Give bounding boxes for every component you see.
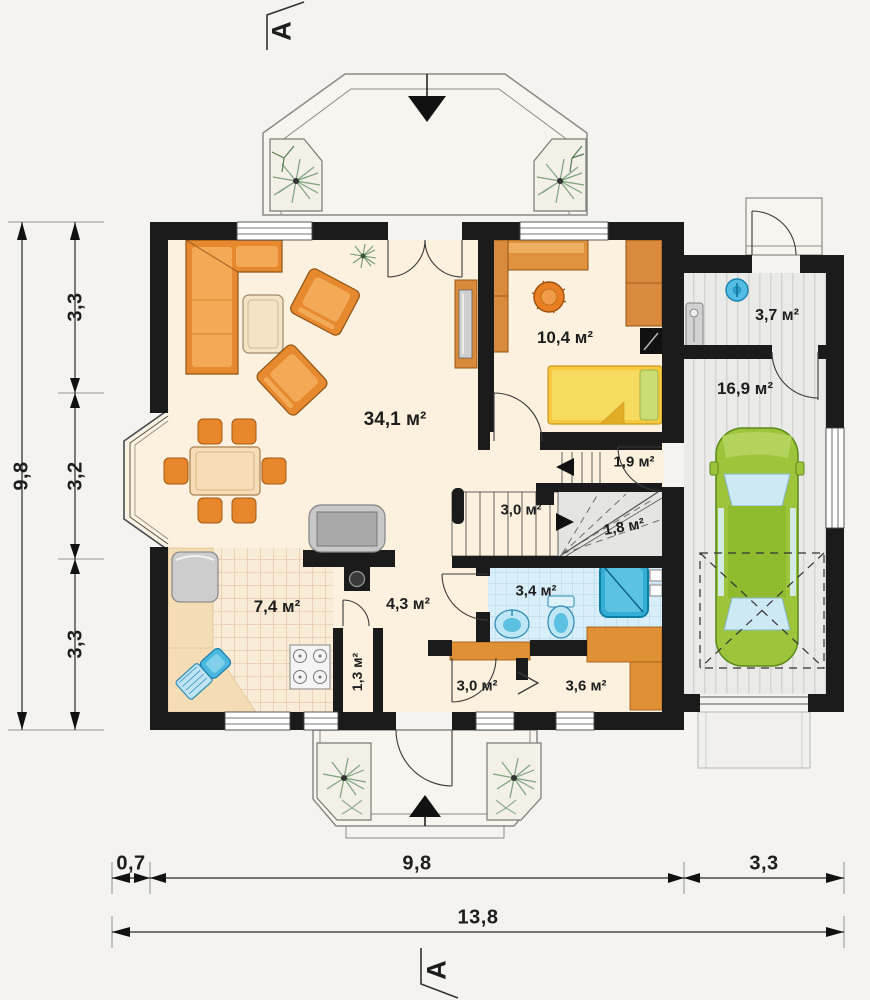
window	[225, 712, 290, 730]
desk-icon	[504, 240, 588, 270]
stove-icon	[290, 645, 330, 689]
room-label-bathroom: 3,4 м²	[515, 583, 556, 600]
window	[826, 428, 844, 528]
toilet-icon	[548, 596, 574, 638]
garage-door	[700, 697, 808, 704]
car-icon	[710, 428, 804, 666]
window	[304, 712, 338, 730]
porch-back	[746, 198, 822, 255]
terrace-top	[263, 74, 587, 215]
window	[520, 222, 608, 240]
porch-bottom	[313, 730, 541, 838]
dim-bottom-seg1: 0,7	[116, 853, 145, 876]
room-label-kitchen: 7,4 м²	[254, 597, 301, 617]
dim-left-seg1: 3,3	[65, 292, 88, 321]
section-marker-top: A	[267, 21, 298, 41]
dim-left-seg3: 3,3	[65, 629, 88, 658]
room-label-stairs: 3,0 м²	[500, 502, 541, 519]
dim-left-seg2: 3,2	[65, 461, 88, 490]
room-label-landing: 1,9 м²	[613, 454, 654, 471]
tv-cabinet-icon	[455, 280, 477, 368]
wardrobe-icon	[626, 240, 662, 326]
floor-plan-drawing	[0, 0, 870, 1000]
boiler-icon	[686, 303, 703, 347]
room-label-wardrobe-b: 3,6 м²	[565, 678, 606, 695]
room-label-wardrobe-a: 3,0 м²	[456, 678, 497, 695]
section-marker-bottom: A	[422, 960, 453, 980]
window	[556, 712, 594, 730]
floor-plan: 34,1 м² 10,4 м² 3,7 м² 16,9 м² 1,9 м² 3,…	[0, 0, 870, 1000]
dim-bottom-seg2: 9,8	[402, 853, 431, 876]
coffee-table-icon	[243, 295, 283, 353]
room-label-hall: 4,3 м²	[386, 596, 430, 614]
room-label-closet: 1,3 м²	[349, 653, 365, 691]
floor-drain-icon	[726, 279, 748, 301]
room-label-bedroom: 10,4 м²	[537, 328, 593, 348]
dim-left-total: 9,8	[11, 461, 34, 490]
window	[237, 222, 312, 240]
shower-icon	[600, 563, 648, 617]
tv-icon	[640, 328, 662, 354]
sink-icon	[495, 610, 529, 638]
dim-bottom-seg3: 3,3	[749, 853, 778, 876]
room-label-boiler: 3,7 м²	[755, 307, 799, 325]
room-label-living: 34,1 м²	[364, 409, 427, 431]
fridge-icon	[172, 552, 218, 602]
dim-bottom-total: 13,8	[458, 907, 499, 930]
window	[476, 712, 514, 730]
room-label-garage: 16,9 м²	[717, 379, 773, 399]
bed-icon	[548, 366, 662, 424]
garage-apron	[698, 712, 810, 768]
